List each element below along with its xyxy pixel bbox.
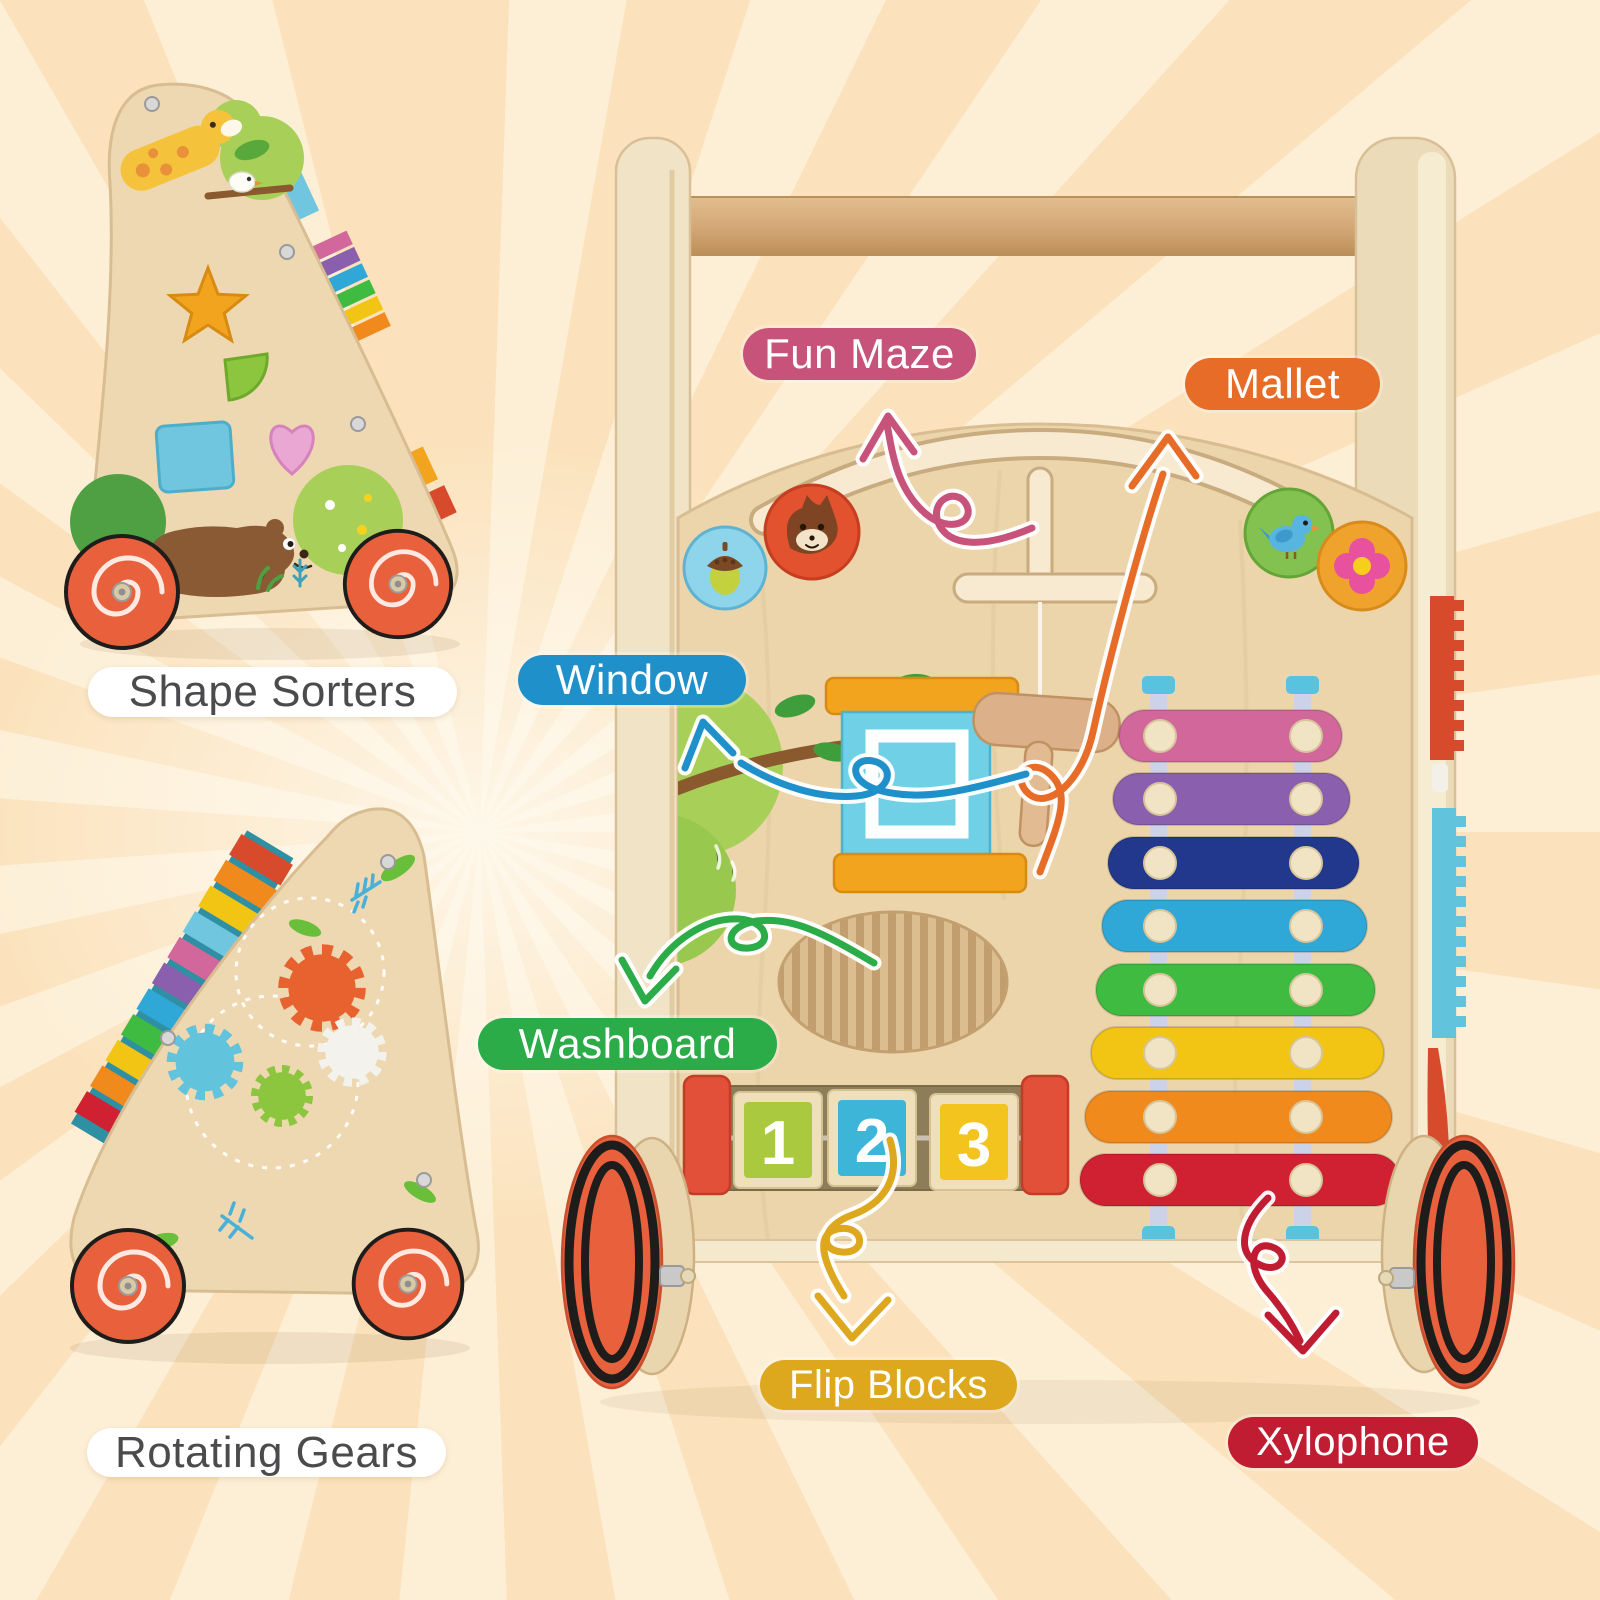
squirrel-disc [765,485,859,579]
flip-block-1: 1 [734,1092,822,1188]
xylophone-bar [1080,1154,1400,1206]
screw [417,1173,431,1187]
window-label: Window [518,655,746,705]
spiral-wheel [345,531,451,637]
spiral-wheel [354,1230,463,1339]
mallet-label: Mallet [1185,358,1380,410]
spiral-wheel [66,536,178,648]
spiral-wheel [72,1230,184,1342]
flip-block-digit: 3 [957,1111,991,1180]
axle-bolt [660,1266,695,1286]
rotating-gears-label: Rotating Gears [87,1428,446,1477]
shape-sorters-view [66,84,457,648]
fun-maze-label: Fun Maze [743,328,976,380]
window-bottom-bar [834,854,1026,892]
xylophone-bar [1091,1027,1384,1079]
board-bottom-edge [678,1240,1412,1262]
xylophone-strap [1150,688,1167,1232]
flip-blocks-right-post [1022,1076,1068,1194]
right-wheel [1379,1136,1514,1388]
xylophone-bar [1096,964,1375,1016]
square-shape [156,421,234,492]
flip-blocks-label: Flip Blocks [760,1360,1017,1410]
flip-blocks-left-post [684,1076,730,1194]
rotating-gears-view [68,809,478,1342]
screw [381,855,395,869]
xylophone-strap [1294,688,1311,1232]
screw [280,245,294,259]
flip-block-2: 2 [828,1090,916,1186]
orange-gear [285,951,359,1025]
axle-bolt [1379,1268,1414,1288]
screw [145,97,159,111]
flip-block-digit: 1 [761,1109,795,1178]
flower-disc [1318,522,1406,610]
screw [351,417,365,431]
blue-gear [172,1029,237,1094]
product-annotation-image: 1 2 3 [0,0,1600,1600]
xylophone-bar [1085,1091,1392,1143]
xylophone-bar [1102,900,1367,952]
screw [161,1031,175,1045]
green-gear [256,1070,309,1123]
white-gear [323,1023,382,1082]
strap-clip [1286,676,1319,694]
flip-block-3: 3 [930,1094,1018,1190]
acorn-disc [684,527,766,609]
xylophone-label: Xylophone [1228,1417,1478,1468]
strap-clip [1142,676,1175,694]
left-wheel [562,1136,695,1388]
shape-sorters-label: Shape Sorters [88,667,457,717]
washboard-label: Washboard [478,1018,777,1070]
flip-blocks-toy: 1 2 3 [684,1076,1068,1194]
push-handle [636,197,1438,255]
